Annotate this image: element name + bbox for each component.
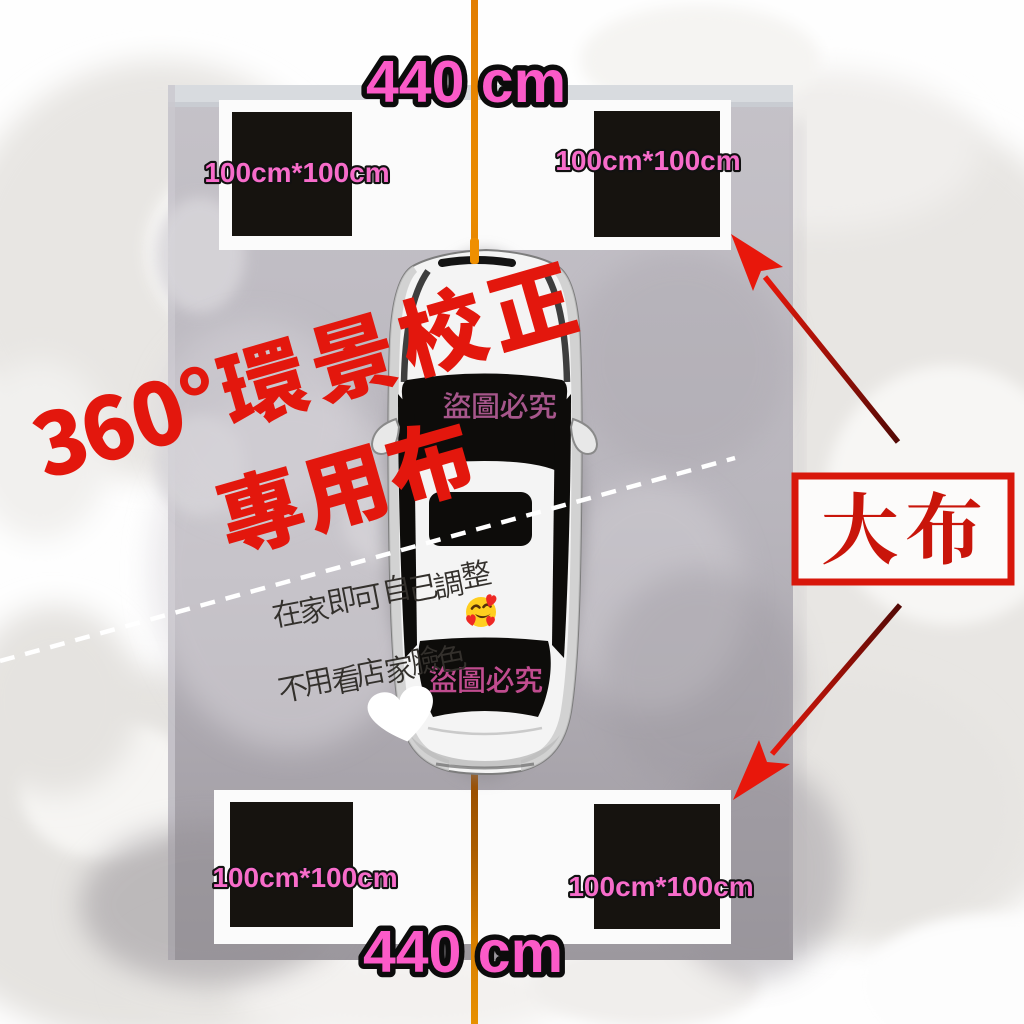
svg-text:100cm*100cm: 100cm*100cm	[555, 145, 740, 176]
svg-text:440 cm: 440 cm	[363, 919, 563, 985]
svg-text:440 cm: 440 cm	[366, 49, 566, 115]
svg-text:100cm*100cm: 100cm*100cm	[212, 862, 397, 893]
svg-text:100cm*100cm: 100cm*100cm	[204, 157, 389, 188]
svg-text:100cm*100cm: 100cm*100cm	[568, 871, 753, 902]
